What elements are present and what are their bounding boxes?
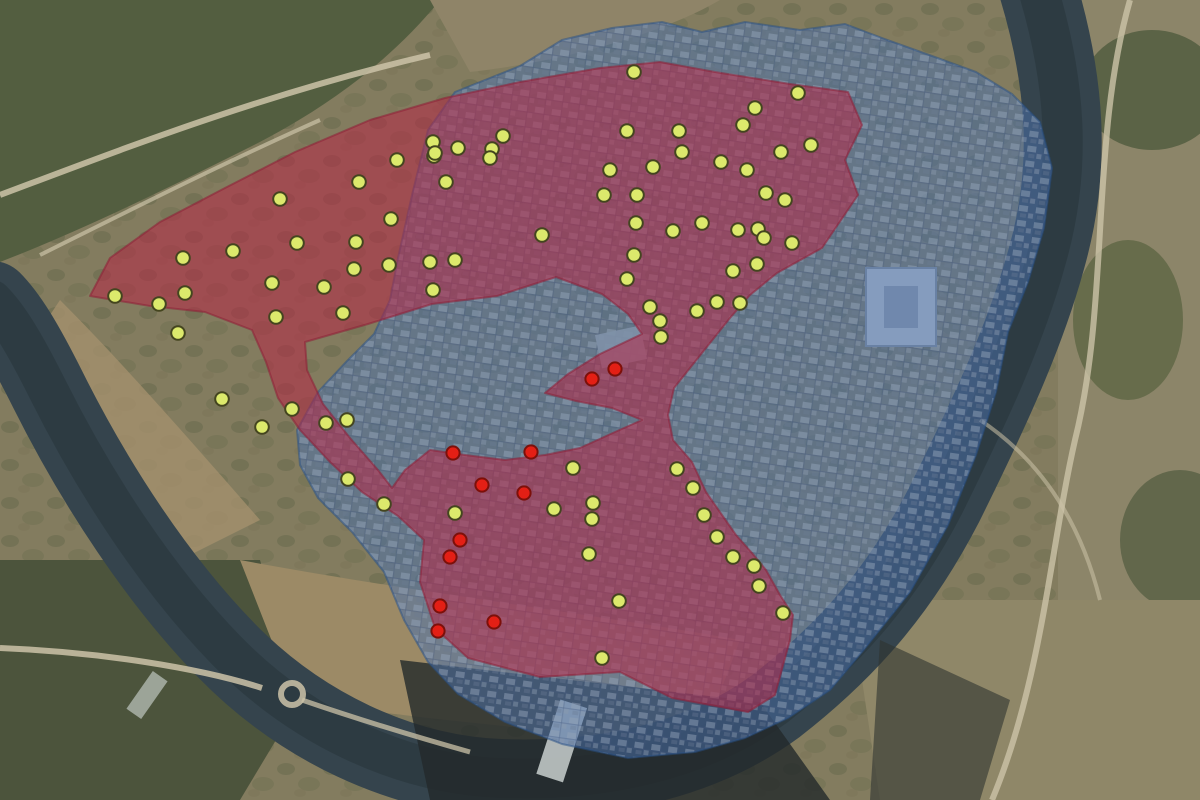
- marker-dot-red[interactable]: [608, 362, 621, 375]
- marker-dot-yellow[interactable]: [423, 255, 437, 269]
- marker-dot-yellow[interactable]: [774, 145, 788, 159]
- marker-dot-yellow[interactable]: [290, 236, 304, 250]
- marker-dot-yellow[interactable]: [804, 138, 818, 152]
- marker-dot-yellow[interactable]: [686, 481, 700, 495]
- marker-dot-yellow[interactable]: [670, 462, 684, 476]
- marker-dot-yellow[interactable]: [629, 216, 643, 230]
- marker-dot-yellow[interactable]: [341, 472, 355, 486]
- marker-dot-yellow[interactable]: [336, 306, 350, 320]
- marker-dot-yellow[interactable]: [265, 276, 279, 290]
- marker-dot-yellow[interactable]: [595, 651, 609, 665]
- marker-dot-yellow[interactable]: [646, 160, 660, 174]
- marker-dot-red[interactable]: [475, 478, 488, 491]
- marker-dot-yellow[interactable]: [697, 508, 711, 522]
- marker-dot-yellow[interactable]: [426, 283, 440, 297]
- marker-dot-yellow[interactable]: [428, 146, 442, 160]
- marker-dot-yellow[interactable]: [347, 262, 361, 276]
- marker-dot-yellow[interactable]: [285, 402, 299, 416]
- marker-dot-yellow[interactable]: [752, 579, 766, 593]
- marker-dot-yellow[interactable]: [653, 314, 667, 328]
- marker-dot-yellow[interactable]: [349, 235, 363, 249]
- marker-dot-yellow[interactable]: [352, 175, 366, 189]
- marker-dot-yellow[interactable]: [340, 413, 354, 427]
- marker-dot-yellow[interactable]: [672, 124, 686, 138]
- marker-dot-yellow[interactable]: [176, 251, 190, 265]
- marker-dot-yellow[interactable]: [791, 86, 805, 100]
- marker-dot-yellow[interactable]: [726, 550, 740, 564]
- map-svg[interactable]: [0, 0, 1200, 800]
- marker-dot-yellow[interactable]: [714, 155, 728, 169]
- marker-dot-yellow[interactable]: [585, 512, 599, 526]
- marker-dot-yellow[interactable]: [171, 326, 185, 340]
- marker-dot-red[interactable]: [524, 445, 537, 458]
- marker-dot-yellow[interactable]: [269, 310, 283, 324]
- marker-dot-yellow[interactable]: [778, 193, 792, 207]
- marker-dot-yellow[interactable]: [630, 188, 644, 202]
- marker-dot-yellow[interactable]: [740, 163, 754, 177]
- marker-dot-yellow[interactable]: [586, 496, 600, 510]
- marker-dot-yellow[interactable]: [627, 248, 641, 262]
- marker-dot-yellow[interactable]: [451, 141, 465, 155]
- marker-dot-red[interactable]: [446, 446, 459, 459]
- marker-dot-yellow[interactable]: [627, 65, 641, 79]
- marker-dot-red[interactable]: [433, 599, 446, 612]
- marker-dot-red[interactable]: [487, 615, 500, 628]
- marker-dot-yellow[interactable]: [675, 145, 689, 159]
- marker-dot-yellow[interactable]: [496, 129, 510, 143]
- marker-dot-yellow[interactable]: [382, 258, 396, 272]
- marker-dot-yellow[interactable]: [690, 304, 704, 318]
- marker-dot-yellow[interactable]: [733, 296, 747, 310]
- marker-dot-yellow[interactable]: [726, 264, 740, 278]
- marker-dot-yellow[interactable]: [612, 594, 626, 608]
- marker-dot-yellow[interactable]: [566, 461, 580, 475]
- marker-dot-yellow[interactable]: [582, 547, 596, 561]
- marker-dot-yellow[interactable]: [483, 151, 497, 165]
- marker-dot-yellow[interactable]: [747, 559, 761, 573]
- marker-dot-yellow[interactable]: [757, 231, 771, 245]
- marker-dot-yellow[interactable]: [620, 272, 634, 286]
- marker-dot-yellow[interactable]: [317, 280, 331, 294]
- marker-dot-yellow[interactable]: [178, 286, 192, 300]
- marker-dot-yellow[interactable]: [710, 530, 724, 544]
- marker-dot-yellow[interactable]: [273, 192, 287, 206]
- marker-dot-yellow[interactable]: [384, 212, 398, 226]
- marker-dot-yellow[interactable]: [319, 416, 333, 430]
- marker-dot-yellow[interactable]: [439, 175, 453, 189]
- marker-dot-yellow[interactable]: [785, 236, 799, 250]
- marker-dot-yellow[interactable]: [620, 124, 634, 138]
- marker-dot-yellow[interactable]: [215, 392, 229, 406]
- marker-dot-red[interactable]: [443, 550, 456, 563]
- marker-dot-yellow[interactable]: [695, 216, 709, 230]
- satellite-map-viewport[interactable]: [0, 0, 1200, 800]
- marker-dot-yellow[interactable]: [390, 153, 404, 167]
- marker-dot-yellow[interactable]: [710, 295, 724, 309]
- marker-dot-yellow[interactable]: [603, 163, 617, 177]
- marker-dot-yellow[interactable]: [666, 224, 680, 238]
- marker-dot-yellow[interactable]: [731, 223, 745, 237]
- marker-dot-red[interactable]: [431, 624, 444, 637]
- marker-dot-yellow[interactable]: [597, 188, 611, 202]
- marker-dot-yellow[interactable]: [226, 244, 240, 258]
- marker-dot-yellow[interactable]: [654, 330, 668, 344]
- marker-dot-yellow[interactable]: [255, 420, 269, 434]
- marker-dot-yellow[interactable]: [736, 118, 750, 132]
- marker-dot-yellow[interactable]: [108, 289, 122, 303]
- marker-dot-yellow[interactable]: [759, 186, 773, 200]
- marker-dot-red[interactable]: [517, 486, 530, 499]
- marker-dot-yellow[interactable]: [547, 502, 561, 516]
- marker-dot-red[interactable]: [585, 372, 598, 385]
- marker-dot-yellow[interactable]: [643, 300, 657, 314]
- marker-dot-yellow[interactable]: [448, 506, 462, 520]
- marker-dot-yellow[interactable]: [152, 297, 166, 311]
- marker-dot-yellow[interactable]: [748, 101, 762, 115]
- marker-dot-yellow[interactable]: [377, 497, 391, 511]
- marker-dot-yellow[interactable]: [448, 253, 462, 267]
- marker-dot-red[interactable]: [453, 533, 466, 546]
- marker-dot-yellow[interactable]: [535, 228, 549, 242]
- marker-dot-yellow[interactable]: [750, 257, 764, 271]
- marker-dot-yellow[interactable]: [776, 606, 790, 620]
